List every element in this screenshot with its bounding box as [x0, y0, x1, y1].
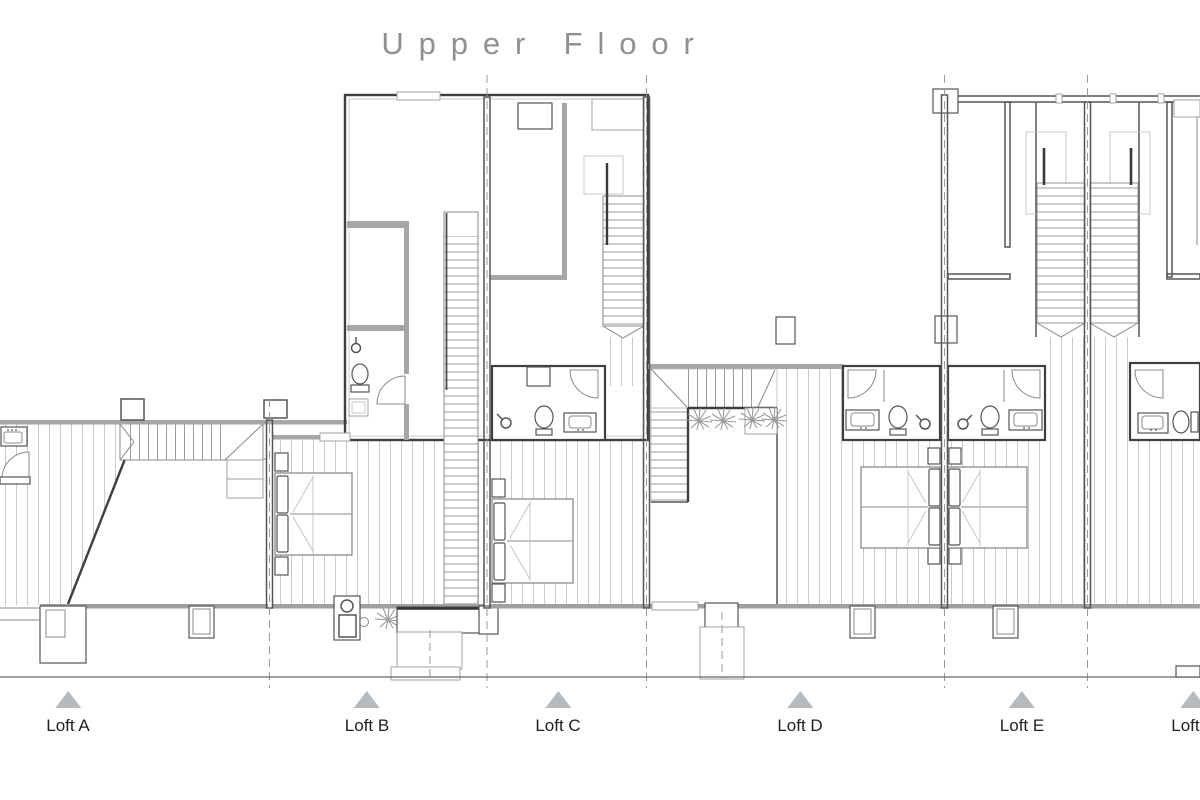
wall: [490, 604, 645, 609]
toilet-icon: [351, 364, 369, 392]
wall: [404, 221, 409, 440]
skylight: [776, 317, 795, 344]
pillar: [479, 606, 498, 634]
closet: [527, 367, 550, 386]
shower-icon: [352, 337, 361, 353]
toilet-icon: [1173, 411, 1198, 433]
wall: [562, 103, 567, 280]
shelf: [0, 477, 30, 484]
bathroom: [843, 366, 940, 440]
unit-label-text: Loft C: [535, 716, 580, 736]
wall: [490, 275, 567, 280]
column: [121, 399, 144, 420]
pillar: [1176, 666, 1200, 677]
sink-icon: [1138, 413, 1168, 433]
bathroom: [948, 366, 1045, 440]
landing-step: [227, 479, 263, 498]
triangle-marker-icon: [1180, 691, 1200, 708]
page-title: Upper Floor: [0, 26, 1090, 62]
column: [935, 316, 957, 343]
floor-plan-drawing: [0, 0, 1200, 800]
unit-label-text: Loft F: [1171, 716, 1200, 736]
triangle-marker-icon: [1009, 691, 1035, 708]
bathroom: [492, 366, 605, 440]
toilet-icon: [889, 406, 907, 435]
stair-icon: [1090, 132, 1150, 337]
faucet: [360, 618, 369, 627]
wall: [0, 420, 347, 425]
unit-label-text: Loft D: [777, 716, 822, 736]
unit-marker-loft-c: Loft C: [535, 691, 580, 736]
pillar: [189, 606, 214, 638]
floorplan-page: Upper Floor Loft A Loft B Loft C Loft D …: [0, 0, 1200, 800]
wall: [948, 274, 1010, 279]
unit-marker-loft-a: Loft A: [46, 691, 89, 736]
door-arc: [377, 376, 405, 404]
door-opening: [320, 433, 350, 441]
wall: [1167, 102, 1172, 277]
wall: [648, 364, 843, 369]
wall: [1005, 102, 1010, 247]
landing-step: [227, 460, 263, 479]
plant-icon: [710, 408, 736, 430]
toilet-icon: [535, 406, 553, 435]
unit-marker-loft-e: Loft E: [1000, 691, 1044, 736]
triangle-marker-icon: [354, 691, 380, 708]
pillar: [993, 606, 1018, 638]
pillar: [850, 606, 875, 638]
stair-icon: [584, 156, 644, 338]
wall: [347, 325, 408, 331]
unit-label-text: Loft A: [46, 716, 89, 736]
stair-icon: [444, 212, 478, 604]
closet: [592, 99, 644, 130]
unit-label-text: Loft B: [345, 716, 389, 736]
wall: [347, 221, 408, 228]
shower-tray: [349, 399, 368, 416]
triangle-marker-icon: [545, 691, 571, 708]
sink-icon: [1009, 410, 1042, 430]
unit-label-text: Loft E: [1000, 716, 1044, 736]
door-opening: [397, 92, 440, 100]
closet: [518, 103, 552, 129]
sink-icon: [334, 596, 360, 640]
sink-icon: [1, 427, 27, 446]
counter: [397, 607, 480, 633]
unit-marker-loft-b: Loft B: [345, 691, 389, 736]
sink-icon: [846, 410, 879, 430]
plant-icon: [686, 408, 712, 430]
unit-marker-loft-f: Loft F: [1171, 691, 1200, 736]
sink-icon: [564, 413, 596, 432]
stair-icon: [1026, 132, 1085, 337]
bathroom: [1130, 363, 1200, 440]
bulkhead-base: [391, 667, 460, 680]
pillar: [40, 606, 86, 663]
triangle-marker-icon: [55, 691, 81, 708]
column: [933, 89, 958, 113]
unit-marker-loft-d: Loft D: [777, 691, 822, 736]
triangle-marker-icon: [787, 691, 813, 708]
closet: [1174, 100, 1200, 117]
toilet-icon: [981, 406, 999, 435]
door-opening: [652, 602, 698, 610]
balcony: [334, 596, 498, 680]
stair-icon: [651, 369, 777, 605]
column: [264, 400, 287, 418]
